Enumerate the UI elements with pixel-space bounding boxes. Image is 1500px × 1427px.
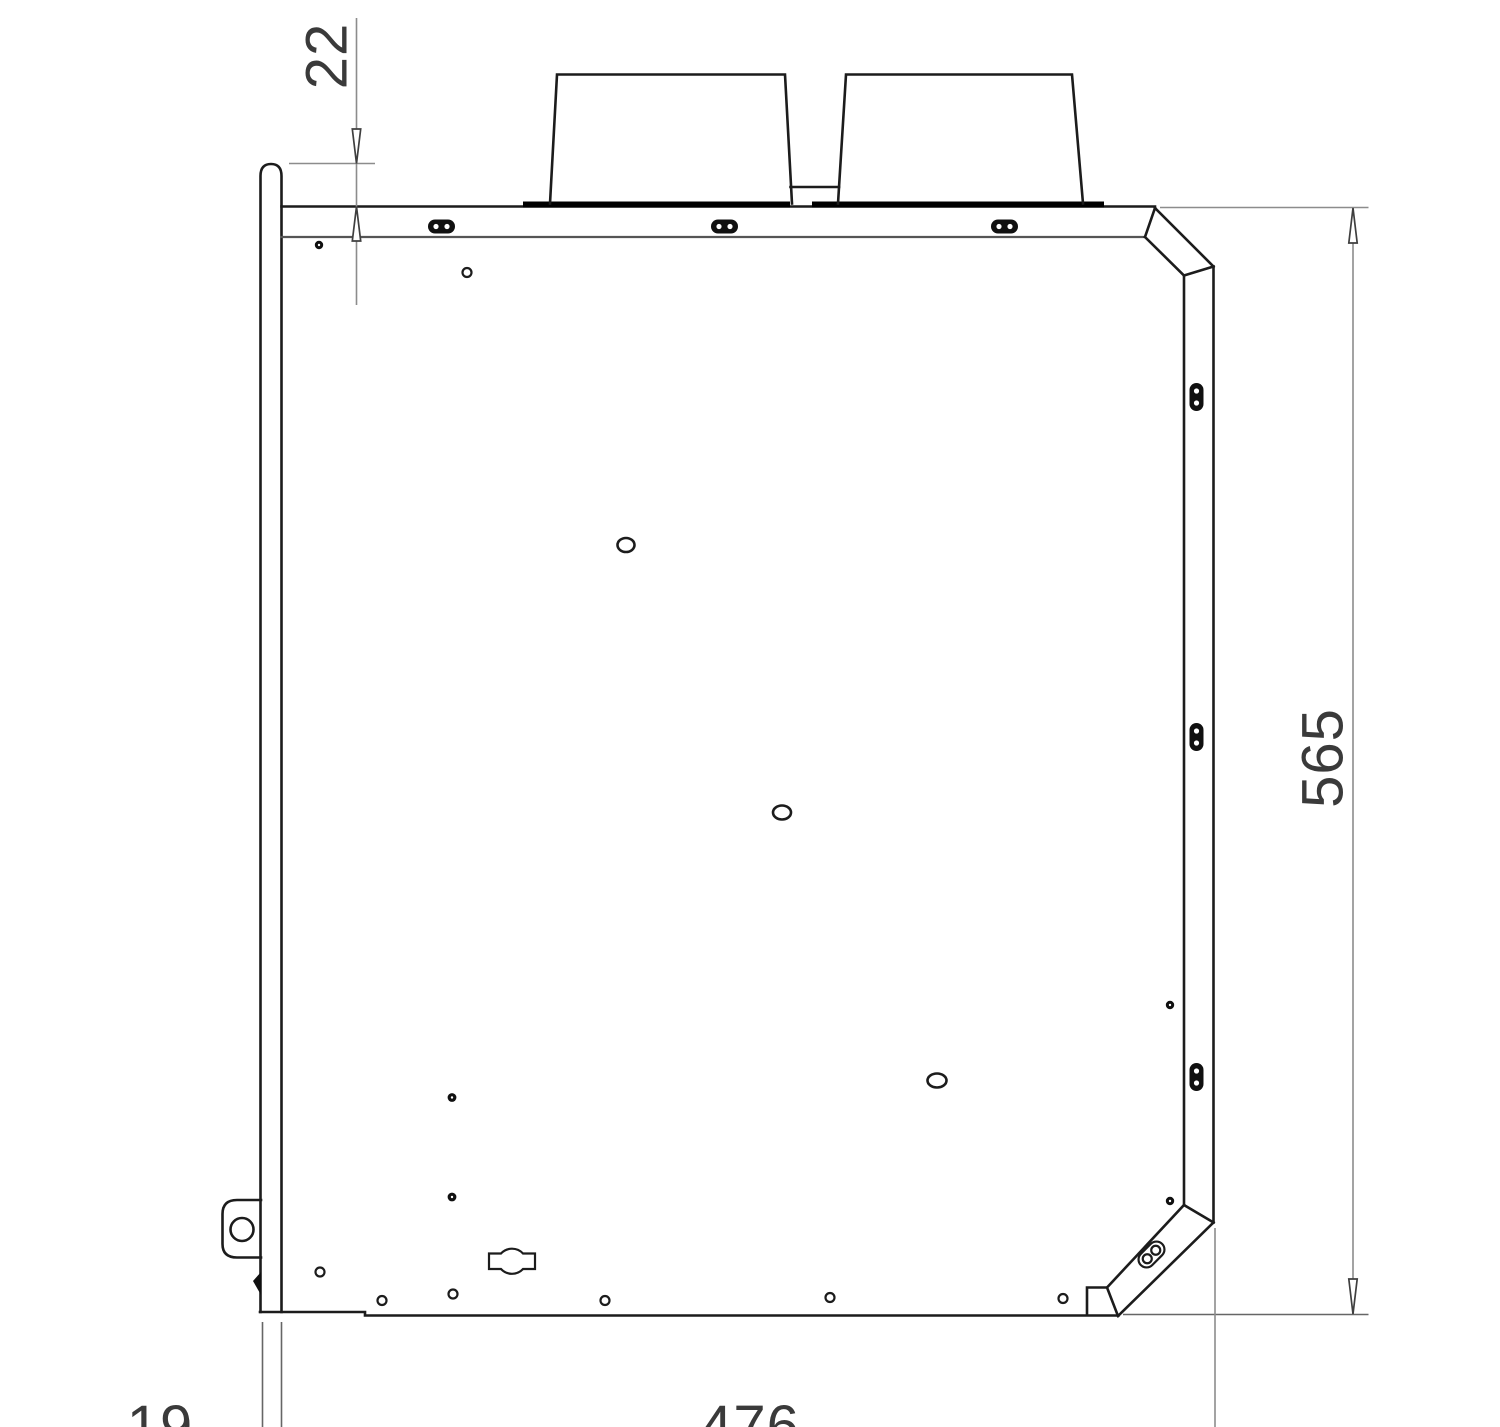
bottom-right-foot [1087, 1288, 1118, 1317]
dim-22-arrow-up [352, 207, 360, 242]
bottom-left-tab [223, 1200, 262, 1258]
panel-side-view-drawing: 22 565 19 476 [0, 0, 1500, 1427]
oval-hole-2 [773, 806, 791, 820]
dim-565-arrow-up [1349, 208, 1357, 243]
dimension-label-19: 19 [127, 1394, 194, 1427]
slotted-hole-top-3 [991, 220, 1018, 234]
left-flange [261, 164, 282, 1312]
pilot-hole [601, 1296, 610, 1305]
pilot-hole [1059, 1294, 1068, 1303]
pilot-hole [826, 1293, 835, 1302]
bone-cutout [489, 1249, 535, 1274]
pilot-hole [449, 1290, 458, 1299]
pilot-hole [316, 1268, 325, 1277]
slotted-hole-right-3 [1190, 1063, 1204, 1091]
rivet-dots [315, 241, 1174, 1205]
dimension-565: 565 [1123, 208, 1369, 1315]
pilot-hole [463, 268, 472, 277]
bottom-edge [260, 1312, 1118, 1316]
dimension-22: 22 [289, 18, 375, 305]
oval-hole-1 [618, 538, 635, 552]
dimension-label-476: 476 [700, 1394, 800, 1427]
dim-22-arrow-down [352, 129, 360, 164]
top-foot-right [838, 75, 1083, 204]
slotted-hole-right-2 [1190, 723, 1204, 751]
holes [315, 220, 1204, 1306]
technical-drawing-canvas: 22 565 19 476 [0, 0, 1500, 1427]
slotted-hole-top-2 [711, 220, 738, 234]
slotted-hole-chamfer [1135, 1238, 1168, 1271]
panel-body [223, 75, 1214, 1317]
flange-wedge-mark [253, 1272, 261, 1295]
slotted-hole-top-1 [428, 220, 455, 234]
dimension-label-565: 565 [1291, 708, 1356, 808]
slotted-hole-right-1 [1190, 383, 1204, 411]
oval-hole-3 [928, 1074, 947, 1088]
bottom-right-chamfer [1107, 1205, 1214, 1316]
dim-565-arrow-down [1349, 1279, 1357, 1314]
dimension-bottom: 19 476 [127, 1228, 1215, 1427]
top-foot-left [550, 75, 792, 204]
dimension-label-22: 22 [295, 23, 360, 90]
top-right-chamfer [1145, 208, 1214, 276]
pilot-hole [378, 1296, 387, 1305]
